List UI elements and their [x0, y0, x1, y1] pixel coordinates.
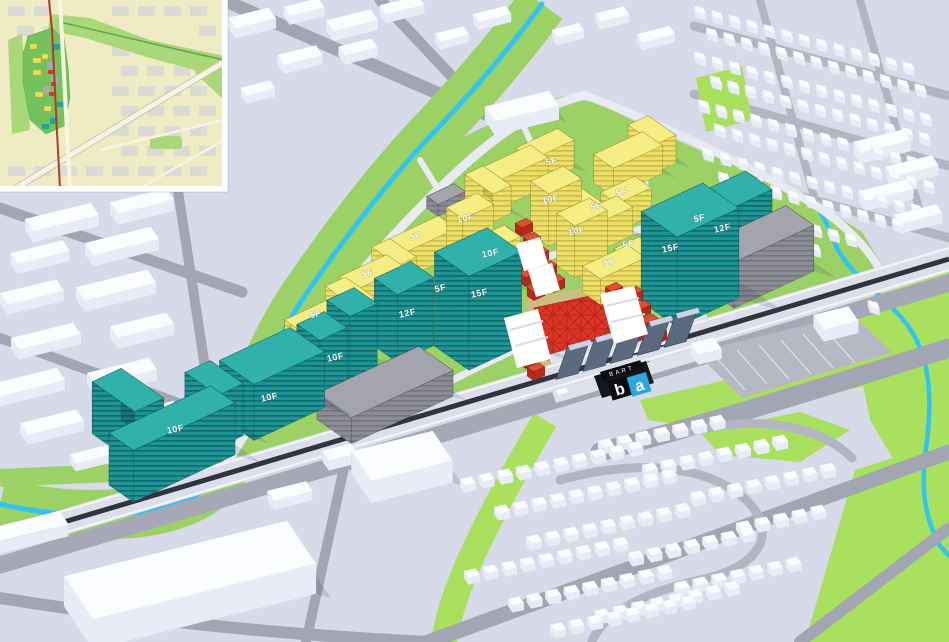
inset-block	[147, 66, 164, 76]
inset-block	[17, 26, 34, 36]
masterplan-rendering: BART b a 10F10F10F12F15F15F12F5F5F5F5F10…	[0, 0, 949, 642]
inset-block	[164, 6, 181, 16]
inset-block	[199, 106, 216, 116]
inset-block	[164, 166, 181, 176]
inset-block	[138, 6, 155, 16]
inset-block	[112, 6, 129, 16]
masterplan-3d-scene: BART b a 10F10F10F12F15F15F12F5F5F5F5F10…	[0, 0, 949, 642]
inset-block	[8, 6, 25, 16]
inset-block	[86, 166, 103, 176]
inset-block	[190, 86, 207, 96]
inset-border-right	[222, 0, 228, 192]
inset-border-bottom	[0, 186, 228, 192]
inset-block	[173, 106, 190, 116]
inset-block	[8, 166, 25, 176]
vicinity-map-inset	[0, 0, 228, 192]
inset-block	[190, 166, 207, 176]
inset-block	[138, 166, 155, 176]
inset-block	[199, 26, 216, 36]
inset-block	[112, 166, 129, 176]
inset-block	[138, 126, 155, 136]
inset-block	[34, 6, 51, 16]
inset-block	[138, 86, 155, 96]
inset-block	[199, 146, 216, 156]
inset-block	[112, 86, 129, 96]
inset-block	[121, 66, 138, 76]
inset-block	[121, 146, 138, 156]
inset-block	[190, 6, 207, 16]
